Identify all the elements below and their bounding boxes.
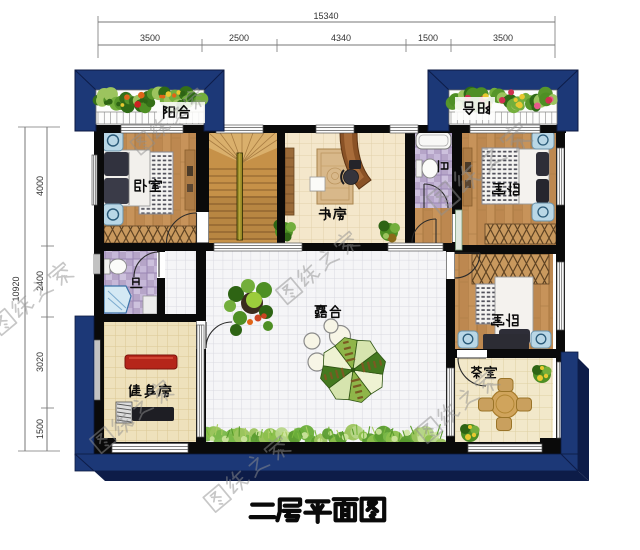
svg-text:2500: 2500 (229, 33, 249, 43)
svg-text:3500: 3500 (493, 33, 513, 43)
svg-text:4340: 4340 (331, 33, 351, 43)
svg-text:15340: 15340 (313, 11, 338, 21)
svg-text:10920: 10920 (11, 276, 21, 301)
svg-text:3500: 3500 (140, 33, 160, 43)
svg-text:3020: 3020 (35, 352, 45, 372)
svg-text:1500: 1500 (35, 419, 45, 439)
svg-text:4000: 4000 (35, 176, 45, 196)
svg-text:1500: 1500 (418, 33, 438, 43)
